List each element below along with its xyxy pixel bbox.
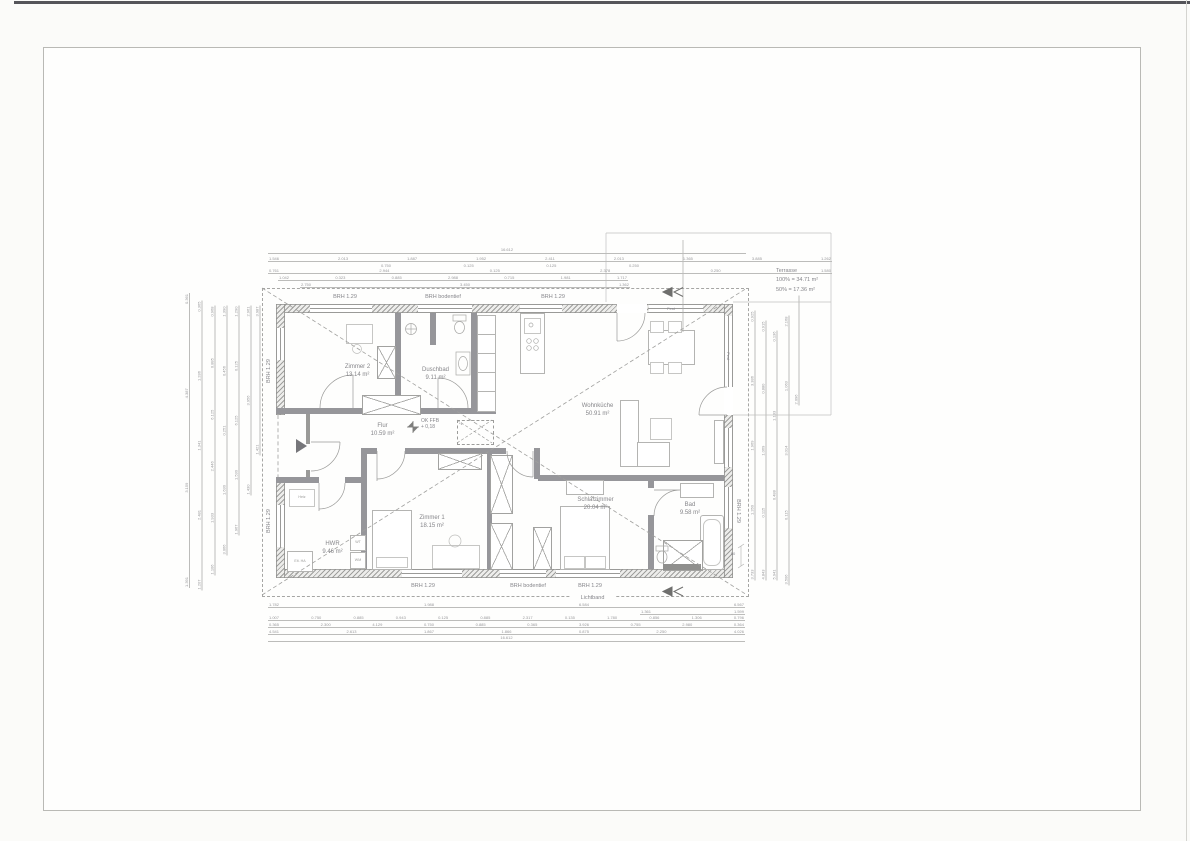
dimension-value: 0.250 [710, 268, 722, 273]
dimension-value: 1.969 [750, 440, 755, 452]
dimension-value: 2.481 [197, 509, 202, 521]
dim-top-row4: 1.0420.3230.8852.9880.7151.9811.717 [278, 274, 628, 281]
room-name: Schlafzimmer [558, 496, 633, 504]
dimension-value: 1.782 [268, 602, 280, 607]
dim-top-row3: 0.7612.9440.1252.3780.2501.580 [268, 267, 832, 274]
room-area: 13.14 m² [320, 371, 395, 379]
dimension-value: 0.796 [733, 615, 745, 620]
dimension-value: 1.007 [268, 615, 280, 620]
dim-top-total: 16.612 [268, 247, 746, 254]
dimension-value: 3.506 [784, 573, 789, 585]
room-name: Bad [666, 501, 714, 509]
room-label-hwr: HWR 9.46 m² [310, 540, 355, 556]
dimension-value: 1.780 [606, 615, 618, 620]
dimension-value: 2.300 [320, 622, 332, 627]
brh-label-top-2: BRH 1.29 [528, 294, 578, 300]
dimension-value: 1.391 [184, 576, 189, 588]
room-area: 18.15 m² [397, 522, 467, 530]
dim-right-col5: 2.096 [793, 296, 800, 406]
dimension-value: 3.014 [784, 445, 789, 457]
dimension-value: 1.306 [691, 615, 703, 620]
dimension-value: 2.378 [599, 268, 611, 273]
dim-bottom-row2: 1.0070.7500.8850.9430.1250.8852.3170.135… [268, 614, 745, 621]
dimension-value: 0.885 [479, 615, 491, 620]
dimension-value: 1.106 [210, 563, 215, 575]
dimension-value: 1.717 [616, 275, 628, 280]
dimension-value: 1.063 [784, 380, 789, 392]
room-label-wohnkueche: Wohnküche 50.91 m² [560, 402, 635, 418]
dimension-value: 0.361 [184, 293, 189, 305]
dimension-value: 2.250 [655, 629, 667, 634]
dim-left-col1: 1.3913.1594.3870.361 [183, 293, 190, 588]
dimension-value: 0.365 [268, 622, 280, 627]
fest-label-top: Fest [660, 307, 682, 311]
room-label-flur: Flur 10.59 m² [350, 422, 415, 438]
dimension-value: 3.987 [255, 306, 260, 318]
dimension-value: 0.488 [772, 489, 777, 501]
dimension-value: 1.952 [475, 256, 487, 261]
dimension-value: 2.944 [378, 268, 390, 273]
dimension-value: 1.430 [246, 483, 251, 495]
dim-bottom-row4: 4.5412.6131.8671.8660.8752.2504.026 [268, 628, 745, 635]
fest-label-right: Fest [726, 346, 730, 366]
room-name: Duschbad [398, 366, 473, 374]
dimension-value: 1.580 [820, 268, 832, 273]
room-area: 50.91 m² [560, 410, 635, 418]
dimension-value: 0.925 [750, 311, 755, 323]
dim-bottom-row3: 0.3652.3004.1290.7500.8850.3653.9260.755… [268, 621, 745, 628]
brh-label-left-2: BRH 1.29 [266, 501, 272, 541]
dimension-value: 1.133 [772, 410, 777, 422]
dim-left-col4: 3.0661.6300.2510.4561.390 [221, 306, 228, 556]
dimension-value: 0.880 [761, 383, 766, 395]
brh-label-bottom-2: BRH 1.29 [565, 583, 615, 589]
dim-left-col3: 1.1061.9332.4466.1250.8850.968 [209, 306, 216, 576]
brh-label-left-1: BRH 1.29 [266, 351, 272, 391]
dim-top-row2: 1.5462.0131.8871.9522.4112.0131.3653.885… [268, 255, 832, 262]
dimension-value: 3.885 [751, 256, 763, 261]
room-label-schlafzimmer: Schlafzimmer 20.04 m² [558, 496, 633, 512]
dim-bottom-total: 16.612 [268, 635, 745, 642]
dimension-value: 0.365 [526, 622, 538, 627]
dimension-value: 0.715 [503, 275, 515, 280]
room-area: 9.11 m² [398, 374, 473, 382]
dimension-value: 0.323 [334, 275, 346, 280]
dimension-value: 1.630 [222, 484, 227, 496]
room-area: 9.46 m² [310, 548, 355, 556]
dimension-value: 1.362 [618, 282, 630, 287]
dimension-value: 1.262 [820, 256, 832, 261]
dimension-value: 1.421 [255, 443, 260, 455]
brh-label-top-1: BRH 1.29 [320, 294, 370, 300]
dimension-value: 1.390 [222, 306, 227, 318]
dimension-value: 3.926 [578, 622, 590, 627]
dimension-value: 0.251 [222, 425, 227, 437]
dimension-value: 4.387 [184, 387, 189, 399]
dimension-value: 1.069 [761, 445, 766, 457]
dimension-value: 0.885 [210, 357, 215, 369]
dimension-value: 4.541 [268, 629, 280, 634]
dim-right-col3: 5.9410.4881.1330.136 [771, 331, 778, 581]
dim-50-label: 50 [728, 552, 738, 556]
dimension-value: 0.365 [197, 301, 202, 313]
ok-ffb-value: + 0,18 [421, 425, 455, 431]
dimension-value: 1.286 [197, 370, 202, 382]
dimension-value: 0.915 [761, 321, 766, 333]
terrasse-50: 50% = 17.36 m² [776, 286, 866, 295]
dimension-value: 2.013 [613, 256, 625, 261]
dimension-value: 3.386 [750, 375, 755, 387]
dimension-value: 3.733 [750, 568, 755, 580]
room-label-zimmer2: Zimmer 2 13.14 m² [320, 363, 395, 379]
dimension-value: 1.365 [682, 256, 694, 261]
dimension-value: 4.129 [371, 622, 383, 627]
dimension-value: 2.988 [447, 275, 459, 280]
dimension-value: 2.750 [300, 282, 312, 287]
dim-right-col4: 3.5060.1153.0141.0632.168 [783, 316, 790, 586]
labels-layer: Zimmer 2 13.14 m² Duschbad 9.11 m² Wohnk… [0, 0, 1190, 841]
dimension-value: 0.135 [564, 615, 576, 620]
dimension-value: 0.856 [648, 615, 660, 620]
brh-label-bottom-1: BRH 1.29 [398, 583, 448, 589]
dimension-value: 1.042 [278, 275, 290, 280]
dimension-value: 0.456 [222, 365, 227, 377]
dim-right-col1: 3.7331.2601.9693.3860.925 [749, 311, 756, 581]
ok-ffb-label: OK FFB + 0,18 [421, 419, 455, 430]
dimension-value: 1.967 [234, 523, 239, 535]
dimension-value: 0.875 [578, 629, 590, 634]
room-area: 10.59 m² [350, 430, 415, 438]
dimension-value: 0.885 [475, 622, 487, 627]
room-label-bad: Bad 9.58 m² [666, 501, 714, 517]
dimension-value: 2.446 [210, 460, 215, 472]
dimension-value: 1.887 [406, 256, 418, 261]
dimension-value: 2.980 [681, 622, 693, 627]
dimension-value: 3.956 [246, 395, 251, 407]
dimension-value: 0.885 [391, 275, 403, 280]
dimension-value: 1.981 [560, 275, 572, 280]
dimension-value: 3.450 [459, 282, 471, 287]
brh-label-right: BRH 1.29 [735, 491, 741, 531]
room-label-duschbad: Duschbad 9.11 m² [398, 366, 473, 382]
dimension-value: 0.885 [353, 615, 365, 620]
dimension-value: 6.125 [210, 409, 215, 421]
room-name: Zimmer 2 [320, 363, 395, 371]
dimension-value: 1.290 [234, 306, 239, 318]
room-name: Flur [350, 422, 415, 430]
dimension-value: 2.613 [345, 629, 357, 634]
room-area: 9.58 m² [666, 509, 714, 517]
dimension-value: 0.755 [630, 622, 642, 627]
terrasse-100: 100% = 34.71 m² [776, 276, 866, 285]
dimension-value: 0.115 [761, 507, 766, 519]
dimension-value: 6.125 [234, 415, 239, 427]
dimension-value: 6.567 [733, 602, 745, 607]
dimension-value: 6.584 [578, 602, 590, 607]
dimension-value: 0.761 [268, 268, 280, 273]
brh-bodentief-label-bottom: BRH bodentief [500, 583, 556, 589]
dim-left-col7: 1.4213.987 [254, 306, 261, 456]
dim-right-col2: 4.8430.1151.0690.8800.915 [760, 321, 767, 581]
room-name: Zimmer 1 [397, 514, 467, 522]
dimension-value: 1.341 [197, 440, 202, 452]
room-name: Wohnküche [560, 402, 635, 410]
dimension-value: 0.943 [395, 615, 407, 620]
dimension-value: 0.364 [733, 622, 745, 627]
dimension-value: 1.866 [500, 629, 512, 634]
dimension-value: 1.530 [234, 469, 239, 481]
dim-left-col2: 1.2072.4811.3411.2860.365 [196, 301, 203, 591]
dimension-value: 4.026 [733, 629, 745, 634]
dim-left-col6: 1.4303.9562.961 [245, 306, 252, 496]
dimension-value: 3.066 [222, 543, 227, 555]
dimension-value: 1.988 [423, 602, 435, 607]
dimension-value: 0.750 [310, 615, 322, 620]
dimension-value: 1.207 [197, 578, 202, 590]
dimension-value: 2.411 [544, 256, 556, 261]
dimension-value: 0.136 [772, 331, 777, 343]
dimension-value: 0.125 [437, 615, 449, 620]
room-label-zimmer1: Zimmer 1 18.15 m² [397, 514, 467, 530]
dimension-value: 5.941 [772, 568, 777, 580]
dimension-value: 0.125 [489, 268, 501, 273]
dim-bottom-row1: 1.7821.9886.5846.567 [268, 601, 745, 608]
star1-label: *1 [459, 422, 469, 426]
brh-bodentief-label-top: BRH bodentief [415, 294, 471, 300]
dimension-value: 1.933 [210, 512, 215, 524]
dimension-value: 0.115 [784, 509, 789, 521]
dimension-value: 1.867 [423, 629, 435, 634]
room-name: HWR [310, 540, 355, 548]
dimension-value: 4.843 [761, 568, 766, 580]
dimension-value: 1.546 [268, 256, 280, 261]
dimension-value: 2.168 [784, 316, 789, 328]
dimension-value: 2.013 [337, 256, 349, 261]
dim-top-row5: 2.7503.4501.362 [300, 281, 630, 288]
dimension-value: 2.096 [794, 393, 799, 405]
dimension-value: 0.125 [234, 360, 239, 372]
room-area: 20.04 m² [558, 504, 633, 512]
dimension-value: 0.750 [423, 622, 435, 627]
dimension-value: 0.968 [210, 306, 215, 318]
dimension-value: 2.317 [522, 615, 534, 620]
dimension-value: 1.260 [750, 504, 755, 516]
dimension-value: 2.961 [246, 306, 251, 318]
dimension-value: 3.159 [184, 482, 189, 494]
dim-left-col5: 1.9671.5306.1250.1251.290 [233, 306, 240, 536]
